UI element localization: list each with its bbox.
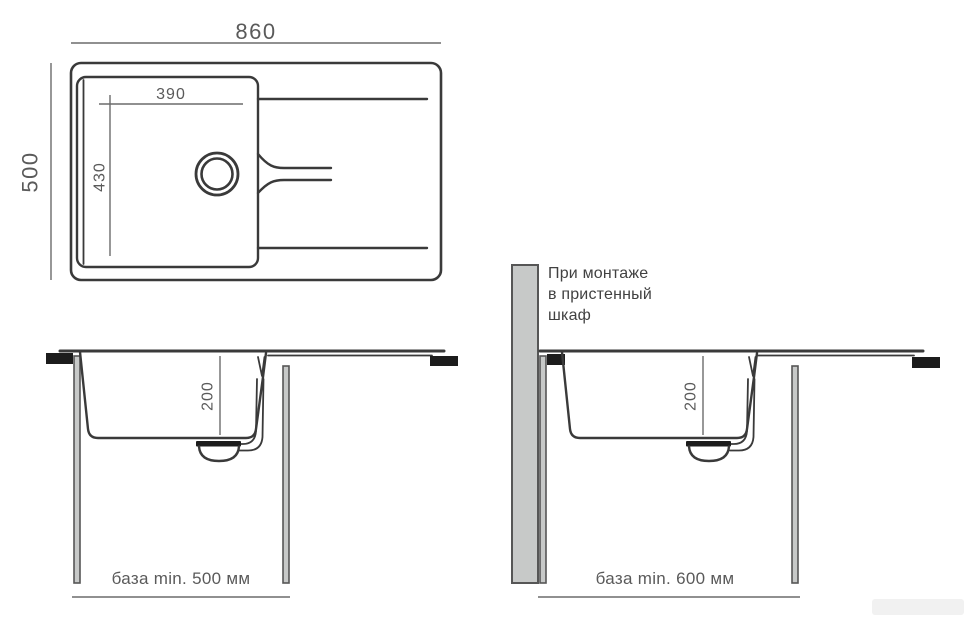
sink-installation-drawing: 860 500 390 430	[0, 0, 970, 622]
dim-label-860: 860	[235, 19, 276, 44]
dim-label-200-right: 200	[683, 381, 700, 411]
dim-label-390: 390	[156, 86, 186, 103]
mounting-note-line-2: в пристенный	[548, 286, 652, 303]
drain-trap	[199, 447, 239, 462]
overflow-pipe-outer-2	[730, 379, 755, 451]
cabinet-panel-right-2	[792, 366, 798, 583]
mounting-note-line-3: шкаф	[548, 307, 591, 324]
dim-label-500: 500	[18, 151, 43, 192]
drainboard-channel-upper	[258, 154, 331, 168]
cabinet-panel-right	[283, 366, 289, 583]
section-wall-cabinet: При монтаже в пристенный шкаф 200 база m…	[512, 265, 940, 597]
mounting-note-line-1: При монтаже	[548, 265, 648, 282]
drawing-svg: 860 500 390 430	[0, 0, 970, 622]
drainboard-channel-lower	[258, 180, 331, 193]
watermark	[872, 599, 964, 615]
dim-label-200-left: 200	[200, 381, 217, 411]
cabinet-panel-left	[74, 356, 80, 583]
top-view: 860 500 390 430	[18, 19, 441, 280]
section-straight-cabinet: 200 база min. 500 мм	[46, 351, 458, 597]
base-label-600: база min. 600 мм	[596, 569, 735, 588]
clamp-left	[46, 353, 73, 364]
dim-label-430: 430	[92, 162, 109, 192]
bowl-section-outline-2	[562, 352, 757, 438]
drain-flange	[196, 441, 241, 447]
clamp-right	[430, 356, 458, 366]
clamp-right-2	[912, 357, 940, 368]
drain-inner-circle	[202, 159, 233, 190]
base-label-500: база min. 500 мм	[112, 569, 251, 588]
drain-flange-2	[686, 441, 731, 447]
bowl-section-outline	[80, 352, 266, 438]
cabinet-panel-left-2	[540, 356, 546, 583]
overflow-pipe-outer	[239, 379, 264, 451]
drain-trap-2	[689, 447, 729, 462]
wall-cabinet-panel	[512, 265, 538, 583]
